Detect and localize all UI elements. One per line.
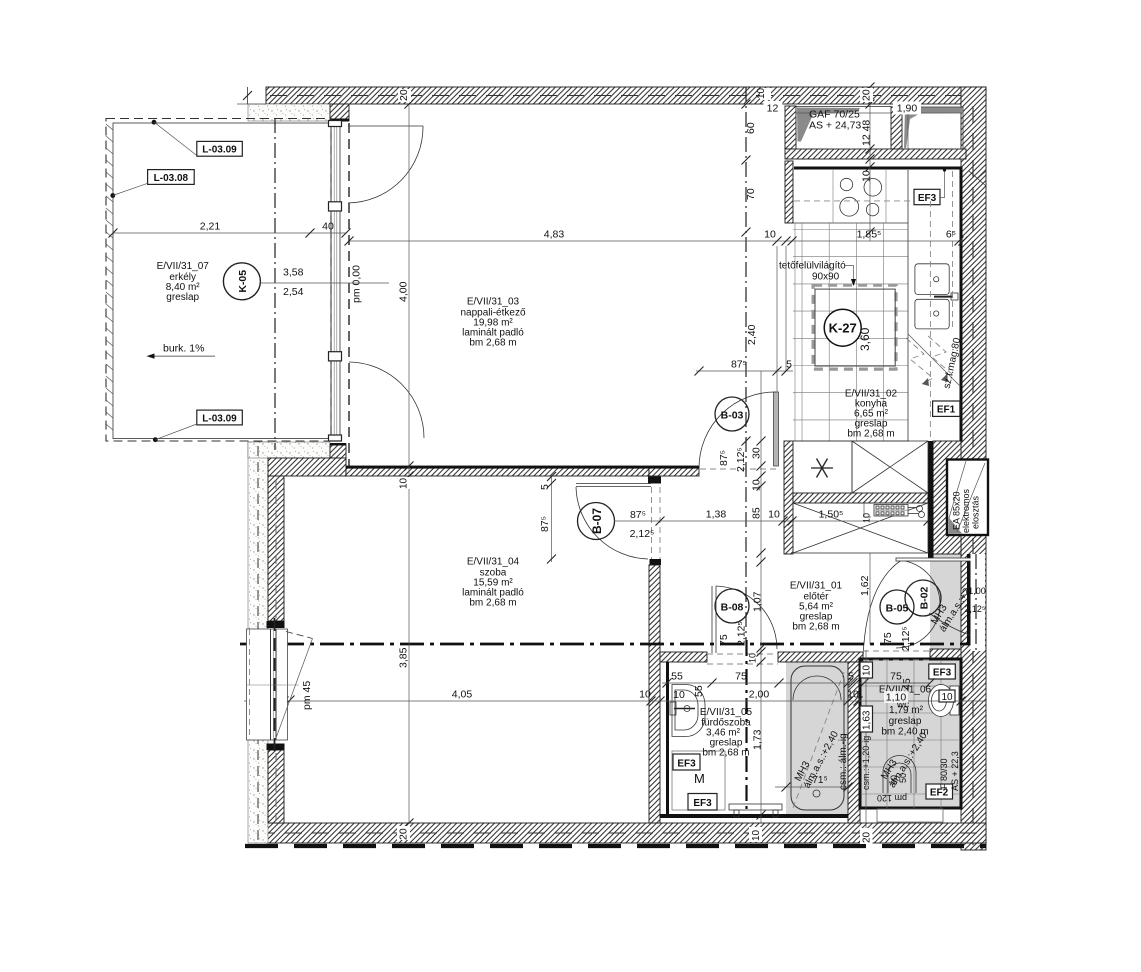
svg-text:10: 10: [673, 689, 685, 701]
svg-text:1,85⁵: 1,85⁵: [857, 229, 882, 241]
svg-text:20: 20: [861, 89, 873, 101]
svg-text:5: 5: [848, 671, 854, 683]
svg-text:12 48: 12 48: [861, 120, 873, 146]
svg-text:F 80/30: F 80/30: [939, 758, 949, 789]
svg-text:E/VII/31_04: E/VII/31_04: [467, 557, 520, 568]
svg-text:greslap: greslap: [889, 716, 922, 727]
svg-text:B-02: B-02: [919, 586, 931, 609]
svg-text:B-03: B-03: [721, 410, 744, 422]
svg-text:1,38: 1,38: [706, 509, 727, 521]
svg-text:1,63: 1,63: [862, 710, 873, 730]
svg-text:pm 45: pm 45: [301, 681, 313, 710]
svg-text:30: 30: [751, 447, 763, 459]
svg-text:10: 10: [768, 509, 780, 521]
svg-text:L-03.09: L-03.09: [202, 413, 237, 424]
svg-text:pm 120: pm 120: [877, 793, 907, 803]
svg-text:10: 10: [941, 692, 953, 703]
svg-text:1,50⁵: 1,50⁵: [819, 509, 844, 521]
svg-text:1,00: 1,00: [968, 586, 986, 596]
svg-text:10: 10: [748, 653, 758, 663]
svg-text:2,00: 2,00: [749, 689, 770, 701]
svg-text:2,12⁵: 2,12⁵: [964, 604, 986, 614]
svg-text:2,12⁵: 2,12⁵: [630, 528, 655, 540]
svg-text:10: 10: [639, 689, 651, 701]
svg-text:bm 2,68 m: bm 2,68 m: [469, 598, 516, 609]
svg-text:B-05: B-05: [886, 603, 909, 615]
svg-text:10: 10: [751, 479, 763, 491]
svg-text:B-07: B-07: [590, 508, 604, 534]
svg-text:55: 55: [671, 671, 683, 683]
svg-text:K-27: K-27: [829, 321, 857, 336]
svg-text:bm 2,68 m: bm 2,68 m: [702, 748, 749, 759]
svg-text:tetőfelülvilágító: tetőfelülvilágító: [779, 261, 846, 272]
svg-text:1,73: 1,73: [752, 729, 764, 750]
svg-text:40: 40: [322, 221, 334, 233]
svg-text:K-05: K-05: [237, 270, 249, 293]
svg-text:10: 10: [399, 477, 410, 489]
svg-text:1,62: 1,62: [859, 575, 871, 596]
svg-text:20: 20: [398, 89, 410, 101]
svg-text:6⁵: 6⁵: [946, 229, 956, 241]
svg-text:EF3: EF3: [933, 668, 952, 679]
svg-text:3,85: 3,85: [398, 647, 410, 668]
svg-text:2,21: 2,21: [200, 221, 221, 233]
svg-text:4,05: 4,05: [452, 689, 473, 701]
svg-text:75: 75: [735, 671, 747, 683]
svg-text:10: 10: [756, 87, 767, 99]
svg-text:bm 2,68 m: bm 2,68 m: [469, 338, 516, 349]
svg-text:85: 85: [751, 507, 763, 519]
svg-text:pm 0,00: pm 0,00: [351, 265, 363, 303]
svg-text:70: 70: [745, 188, 757, 200]
svg-text:EF3: EF3: [677, 759, 696, 770]
svg-text:1,10: 1,10: [886, 692, 907, 704]
svg-text:E/VII/31_03: E/VII/31_03: [467, 297, 520, 308]
svg-text:87⁵: 87⁵: [630, 509, 646, 521]
svg-text:12: 12: [767, 103, 779, 115]
svg-text:M: M: [694, 771, 705, 786]
svg-text:55: 55: [693, 685, 705, 697]
svg-text:E/VII/31_05: E/VII/31_05: [700, 707, 753, 718]
svg-text:10: 10: [862, 664, 873, 676]
svg-text:10: 10: [847, 689, 859, 701]
svg-text:1,79 m²: 1,79 m²: [889, 705, 924, 716]
svg-text:B-08: B-08: [721, 602, 744, 614]
svg-text:20: 20: [862, 831, 873, 843]
svg-text:2,54: 2,54: [283, 286, 304, 298]
svg-text:10: 10: [861, 170, 873, 182]
svg-text:87⁵: 87⁵: [539, 516, 551, 532]
svg-text:75: 75: [882, 632, 894, 644]
svg-text:5: 5: [786, 359, 792, 371]
svg-text:AS + 22,3: AS + 22,3: [950, 751, 960, 791]
svg-text:5: 5: [539, 484, 551, 490]
svg-text:EF1: EF1: [937, 405, 956, 416]
svg-text:burk. 1%: burk. 1%: [163, 343, 204, 355]
svg-text:EA 85x20: EA 85x20: [952, 491, 962, 530]
svg-text:2,12⁵: 2,12⁵: [735, 447, 747, 472]
svg-text:bm 2,68 m: bm 2,68 m: [847, 429, 894, 440]
svg-text:EF3: EF3: [693, 798, 712, 809]
svg-text:E/VII/31_07: E/VII/31_07: [157, 261, 210, 272]
svg-text:csm.: álm.-ig: csm.: álm.-ig: [838, 733, 849, 790]
svg-text:bm 2,68 m: bm 2,68 m: [792, 622, 839, 633]
svg-text:10: 10: [751, 829, 762, 841]
svg-text:AS + 24,73: AS + 24,73: [809, 120, 861, 132]
svg-text:90x90: 90x90: [812, 272, 840, 283]
svg-text:3,58: 3,58: [283, 267, 304, 279]
svg-text:20: 20: [398, 828, 410, 840]
svg-text:2,12⁵: 2,12⁵: [900, 626, 912, 651]
svg-text:2,40: 2,40: [746, 324, 758, 345]
svg-text:4,83: 4,83: [544, 229, 565, 241]
svg-text:4,00: 4,00: [398, 281, 410, 302]
svg-text:elosztás: elosztás: [971, 495, 981, 529]
svg-text:10: 10: [764, 229, 776, 241]
svg-text:87⁵: 87⁵: [718, 450, 730, 466]
svg-text:45: 45: [901, 678, 913, 690]
svg-text:1,90: 1,90: [897, 103, 918, 115]
svg-text:greslap: greslap: [166, 292, 199, 303]
svg-text:EF3: EF3: [918, 193, 937, 204]
svg-text:L-03.08: L-03.08: [154, 173, 189, 184]
svg-text:1,07: 1,07: [752, 591, 764, 612]
svg-text:10: 10: [862, 513, 872, 523]
svg-text:elektromos: elektromos: [961, 488, 971, 533]
svg-text:60: 60: [745, 122, 757, 134]
svg-text:2,12⁵: 2,12⁵: [736, 621, 748, 646]
svg-text:75: 75: [718, 634, 730, 646]
svg-text:L-03.09: L-03.09: [202, 145, 237, 156]
svg-text:3,60: 3,60: [858, 327, 872, 351]
svg-text:E/VII/31_01: E/VII/31_01: [790, 581, 843, 592]
svg-text:87⁵: 87⁵: [731, 359, 747, 371]
